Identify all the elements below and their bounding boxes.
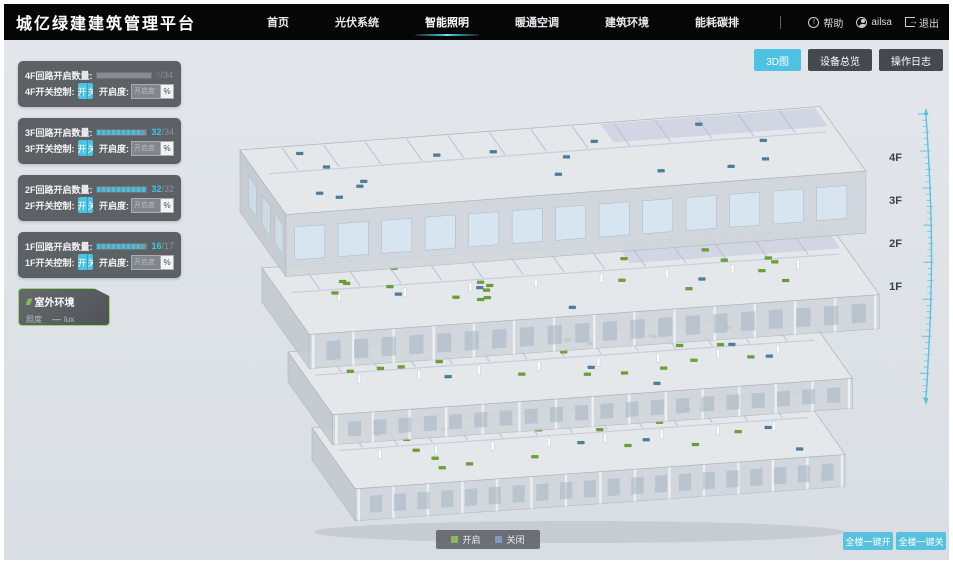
nav-item-energy-carbon[interactable]: 能耗碳排	[691, 4, 743, 40]
main-view: 3D图 设备总览 操作日志 4F回路开启数量: 0/34 4F开关控制: 开 关	[4, 40, 949, 560]
dim-apply-button[interactable]: %	[161, 255, 174, 270]
logout-button[interactable]: 退出	[905, 15, 939, 30]
dim-apply-button[interactable]: %	[161, 198, 174, 213]
floor-zoom-ruler[interactable]	[913, 108, 941, 408]
dim-input[interactable]	[131, 255, 161, 270]
switch-control-label: 4F开关控制:	[25, 85, 75, 98]
dim-apply-button[interactable]: %	[161, 84, 174, 99]
floor-panel-1f: 1F回路开启数量: 16/17 1F开关控制: 开 关 开启度: %	[18, 232, 181, 278]
dim-apply-button[interactable]: %	[161, 141, 174, 156]
floor-axis-label-3f: 3F	[889, 195, 902, 238]
app-header: 城亿绿建建筑管理平台 首页 光伏系统 智能照明 暖通空调 建筑环境 能耗碳排 !…	[4, 4, 949, 40]
user-avatar-icon	[856, 17, 867, 28]
floor-axis-label-4f: 4F	[889, 152, 902, 195]
all-off-button[interactable]: 全楼一键关	[896, 532, 946, 550]
illuminance-unit: lux	[64, 315, 74, 324]
nav-item-hvac[interactable]: 暖通空调	[511, 4, 563, 40]
legend-on-label: 开启	[462, 533, 480, 546]
switch-group: 开 关	[78, 140, 93, 156]
switch-control-label: 1F开关控制:	[25, 256, 75, 269]
device-overview-button[interactable]: 设备总览	[808, 49, 872, 71]
illuminance-label: 照度	[26, 314, 42, 325]
nav-item-building-env[interactable]: 建筑环境	[601, 4, 653, 40]
legend-item-on: 开启	[451, 533, 480, 546]
main-nav: 首页 光伏系统 智能照明 暖通空调 建筑环境 能耗碳排	[244, 4, 762, 40]
switch-control-label: 2F开关控制:	[25, 199, 75, 212]
floor-control-panels: 4F回路开启数量: 0/34 4F开关控制: 开 关 开启度: %	[18, 61, 181, 289]
dim-input[interactable]	[131, 198, 161, 213]
outdoor-env-icon: ///	[26, 297, 31, 307]
dim-input[interactable]	[131, 141, 161, 156]
switch-on-button[interactable]: 开	[78, 140, 88, 156]
username: ailsa	[871, 17, 892, 28]
outdoor-env-title: 室外环境	[35, 294, 75, 309]
switch-off-button[interactable]: 关	[88, 140, 93, 156]
nav-item-smart-lighting[interactable]: 智能照明	[421, 4, 473, 40]
circuit-count-value: 32/32	[151, 184, 174, 194]
dim-label: 开启度:	[99, 85, 129, 98]
help-icon: !	[808, 17, 819, 28]
circuit-count-value: 32/34	[151, 127, 174, 137]
help-button[interactable]: ! 帮助	[808, 15, 843, 30]
view-3d-button[interactable]: 3D图	[754, 49, 801, 71]
switch-on-button[interactable]: 开	[78, 197, 88, 213]
circuit-count-value: 16/17	[151, 241, 174, 251]
logout-icon	[905, 17, 915, 27]
floor-panel-2f: 2F回路开启数量: 32/32 2F开关控制: 开 关 开启度: %	[18, 175, 181, 221]
help-label: 帮助	[823, 15, 843, 30]
circuit-count-value: 0/34	[156, 70, 174, 80]
user-menu[interactable]: ailsa	[856, 17, 892, 28]
floor-axis-label-2f: 2F	[889, 238, 902, 281]
circuit-progress-bar	[96, 186, 148, 193]
circuit-progress-bar	[96, 243, 148, 250]
floor-axis-label-1f: 1F	[889, 281, 902, 324]
dim-label: 开启度:	[99, 256, 129, 269]
circuit-count-label: 4F回路开启数量:	[25, 69, 93, 82]
legend-on-swatch	[451, 536, 458, 543]
circuit-count-label: 2F回路开启数量:	[25, 183, 93, 196]
light-status-legend: 开启 关闭	[436, 530, 540, 549]
all-on-button[interactable]: 全楼一键开	[843, 532, 893, 550]
circuit-progress-bar	[96, 129, 148, 136]
outdoor-env-panel: /// 室外环境 照度 — lux	[18, 288, 110, 326]
legend-off-label: 关闭	[506, 533, 524, 546]
whole-building-buttons: 全楼一键开 全楼一键关	[843, 532, 946, 550]
floor-axis: 4F 3F 2F 1F	[889, 152, 902, 324]
header-divider	[780, 16, 781, 29]
circuit-progress-bar	[96, 72, 152, 79]
circuit-count-label: 3F回路开启数量:	[25, 126, 93, 139]
floor-panel-4f: 4F回路开启数量: 0/34 4F开关控制: 开 关 开启度: %	[18, 61, 181, 107]
circuit-count-label: 1F回路开启数量:	[25, 240, 93, 253]
switch-group: 开 关	[78, 254, 93, 270]
switch-group: 开 关	[78, 83, 93, 99]
header-right: ! 帮助 ailsa 退出	[780, 15, 939, 30]
illuminance-value: —	[52, 314, 61, 324]
legend-off-swatch	[495, 536, 502, 543]
switch-group: 开 关	[78, 197, 93, 213]
switch-off-button[interactable]: 关	[88, 83, 93, 99]
app-window: 城亿绿建建筑管理平台 首页 光伏系统 智能照明 暖通空调 建筑环境 能耗碳排 !…	[4, 4, 949, 560]
dim-input[interactable]	[131, 84, 161, 99]
switch-on-button[interactable]: 开	[78, 254, 88, 270]
nav-item-home[interactable]: 首页	[263, 4, 293, 40]
switch-off-button[interactable]: 关	[88, 197, 93, 213]
nav-item-pv-system[interactable]: 光伏系统	[331, 4, 383, 40]
app-title: 城亿绿建建筑管理平台	[16, 10, 196, 34]
switch-off-button[interactable]: 关	[88, 254, 93, 270]
logout-label: 退出	[919, 15, 939, 30]
view-toolbar: 3D图 设备总览 操作日志	[754, 49, 943, 71]
floor-panel-3f: 3F回路开启数量: 32/34 3F开关控制: 开 关 开启度: %	[18, 118, 181, 164]
dim-label: 开启度:	[99, 142, 129, 155]
operation-log-button[interactable]: 操作日志	[879, 49, 943, 71]
legend-item-off: 关闭	[495, 533, 524, 546]
switch-control-label: 3F开关控制:	[25, 142, 75, 155]
switch-on-button[interactable]: 开	[78, 83, 88, 99]
dim-label: 开启度:	[99, 199, 129, 212]
